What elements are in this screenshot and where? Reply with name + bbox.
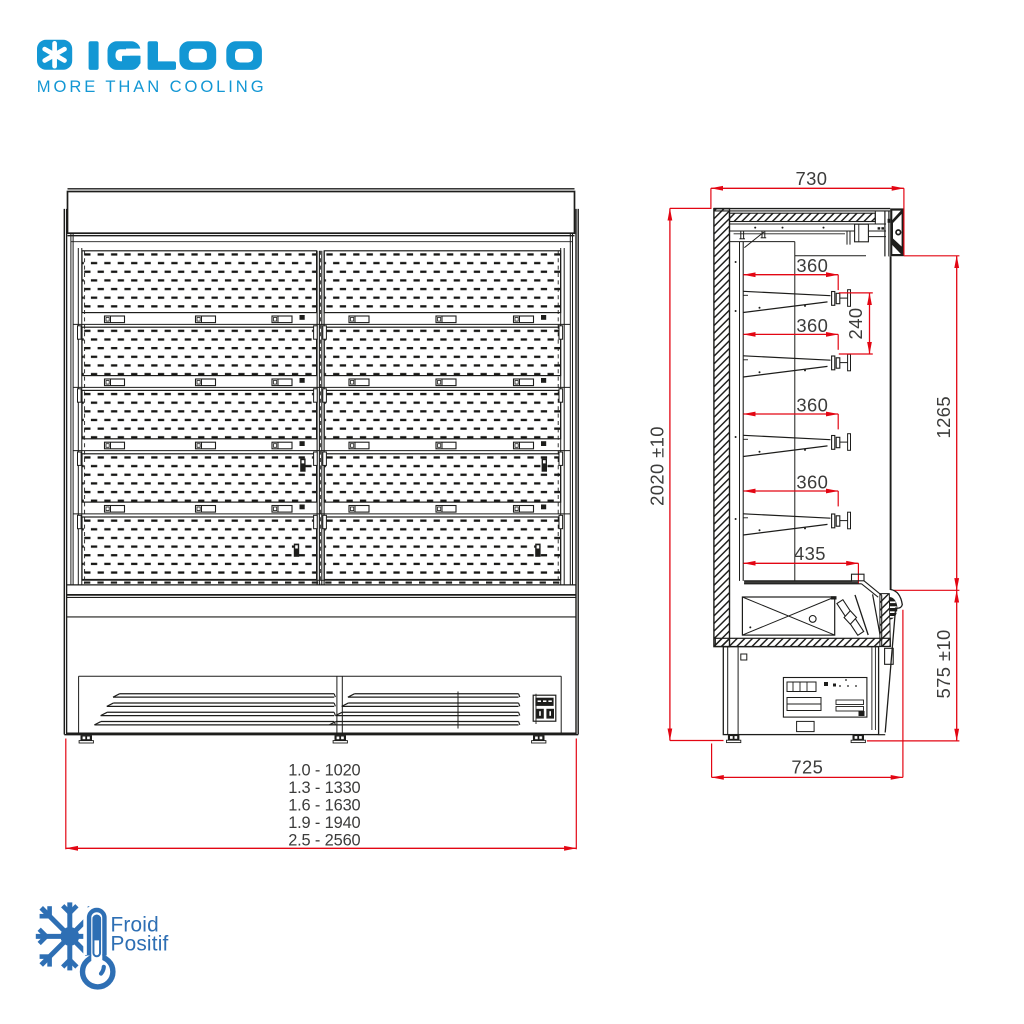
- svg-text:1.3 - 1330: 1.3 - 1330: [288, 779, 360, 797]
- svg-text:1.6 - 1630: 1.6 - 1630: [288, 797, 360, 815]
- svg-text:1265: 1265: [933, 396, 954, 439]
- svg-text:360: 360: [796, 471, 828, 492]
- svg-text:360: 360: [796, 394, 828, 415]
- svg-text:725: 725: [791, 757, 823, 778]
- svg-text:575 ±10: 575 ±10: [933, 629, 954, 698]
- svg-text:2.5 - 2560: 2.5 - 2560: [288, 832, 360, 850]
- svg-text:1.9 - 1940: 1.9 - 1940: [288, 814, 360, 832]
- svg-text:435: 435: [794, 543, 826, 564]
- svg-text:Positif: Positif: [111, 932, 169, 955]
- svg-text:2020 ±10: 2020 ±10: [647, 426, 668, 506]
- svg-text:240: 240: [845, 308, 866, 340]
- svg-text:360: 360: [796, 255, 828, 276]
- svg-text:730: 730: [796, 168, 828, 189]
- svg-text:1.0 - 1020: 1.0 - 1020: [288, 762, 360, 780]
- svg-text:360: 360: [796, 315, 828, 336]
- svg-text:MORE THAN COOLING: MORE THAN COOLING: [37, 77, 267, 96]
